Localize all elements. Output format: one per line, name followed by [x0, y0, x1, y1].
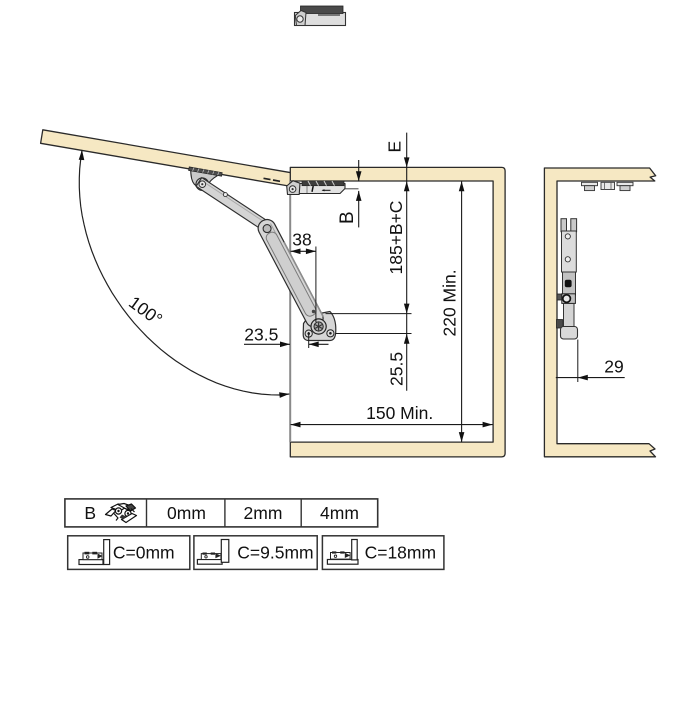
svg-text:4mm: 4mm — [320, 503, 359, 523]
svg-text:185+B+C: 185+B+C — [386, 201, 406, 275]
svg-text:220 Min.: 220 Min. — [440, 269, 460, 336]
svg-text:0mm: 0mm — [167, 503, 206, 523]
svg-text:C=9.5mm: C=9.5mm — [237, 543, 313, 563]
svg-text:29: 29 — [604, 357, 623, 377]
svg-text:C=0mm: C=0mm — [113, 543, 175, 563]
svg-text:E: E — [385, 141, 405, 153]
svg-text:150 Min.: 150 Min. — [366, 403, 433, 423]
svg-text:B: B — [84, 503, 96, 523]
svg-text:25.5: 25.5 — [387, 352, 407, 386]
svg-text:C=18mm: C=18mm — [365, 543, 436, 563]
svg-text:B: B — [337, 211, 358, 224]
svg-text:38: 38 — [292, 230, 311, 250]
svg-text:23.5: 23.5 — [244, 324, 278, 344]
svg-text:2mm: 2mm — [244, 503, 283, 523]
